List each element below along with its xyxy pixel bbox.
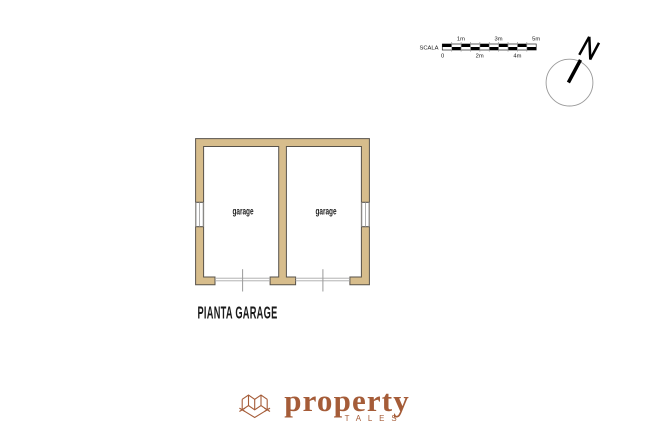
svg-text:TALES: TALES: [345, 414, 404, 423]
svg-text:garage: garage: [315, 205, 336, 217]
svg-text:5m: 5m: [532, 36, 540, 42]
svg-text:2m: 2m: [476, 53, 484, 59]
svg-text:property: property: [284, 383, 410, 418]
svg-text:1m: 1m: [457, 36, 465, 42]
svg-text:4m: 4m: [513, 53, 521, 59]
svg-text:SCALA: SCALA: [419, 45, 438, 51]
svg-text:0: 0: [441, 53, 444, 59]
svg-text:3m: 3m: [494, 36, 502, 42]
svg-text:garage: garage: [232, 205, 253, 217]
svg-text:PIANTA GARAGE: PIANTA GARAGE: [198, 303, 278, 323]
